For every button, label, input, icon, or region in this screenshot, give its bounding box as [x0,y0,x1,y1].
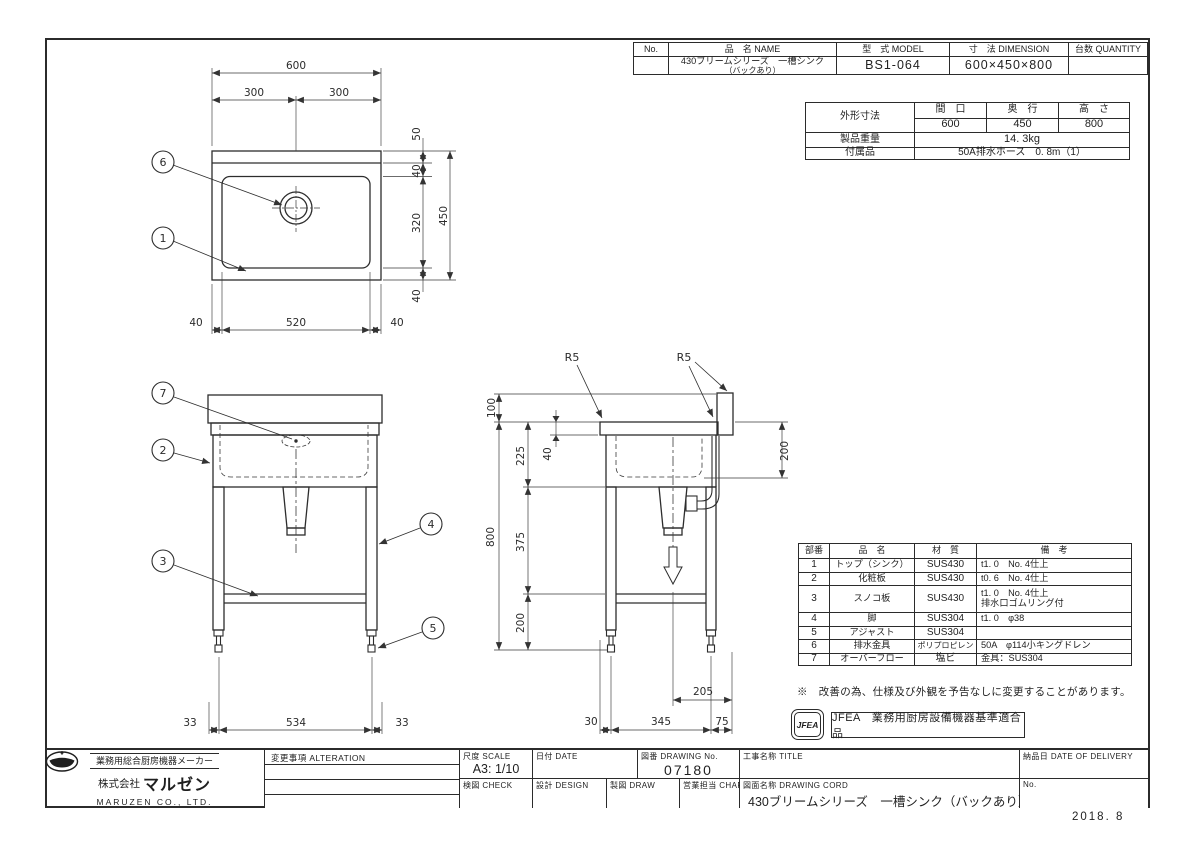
part-name: アジャスト [829,626,914,640]
design-cell: 設計 DESIGN [533,779,607,808]
dim-top-back-gap: 50 [411,127,423,140]
product-header-table: No. 品 名 NAME 型 式 MODEL 寸 法 DIMENSION 台数 … [633,42,1148,75]
dim-front-foot-left: 33 [183,717,196,729]
dim-side-sink-to-shelf: 375 [515,532,527,552]
front-view-hidden-lines [220,425,368,553]
dim-top-bottom-center: 520 [286,317,306,329]
parts-col-material: 材 質 [914,544,976,558]
alteration-row-1 [265,765,459,780]
side-view-outline [600,393,733,630]
parts-col-note: 備 考 [976,544,1131,558]
part-name: 脚 [829,612,914,626]
jfea-stamp: JFEA [791,709,824,740]
maruzen-logo-icon [45,750,79,772]
flow-direction-arrow [664,547,682,584]
col-no: No. [634,43,668,56]
dim-top-sink-depth: 320 [411,213,423,233]
delivery-date-label: 納品日 DATE OF DELIVERY [1020,750,1148,762]
no-value [634,56,668,75]
part-name: トップ（シンク） [829,558,914,572]
alteration-label: 変更事項 ALTERATION [265,750,459,765]
front-view-dimension-labels: 33 534 33 [183,717,408,729]
dim-top-width: 600 [286,60,306,72]
dim-top-rim: 40 [411,164,423,177]
front-view: 33 534 33 7 2 3 4 5 [152,382,444,734]
scale-cell: 尺度 SCALE A3: 1/10 [460,750,533,779]
product-name: 430ブリームシリーズ 一槽シンク （バックあり） [668,56,836,75]
overflow-point [294,439,297,442]
part-no: 2 [799,572,829,586]
revision-date-code: 2018. 8 [1072,811,1124,823]
weight-label: 製品重量 [806,132,914,147]
balloon-4: 4 [428,518,435,531]
top-view-outline [212,151,381,280]
date-cell: 日付 DATE [533,750,638,779]
balloon-3: 3 [160,555,167,568]
col-dimension: 寸 法 DIMENSION [949,43,1068,56]
company-name-en: MARUZEN CO., LTD. [96,797,212,807]
dim-side-shelf-to-floor: 200 [515,613,527,633]
part-material: SUS430 [914,572,976,586]
scale-value: A3: 1/10 [460,762,532,776]
company-prefix: 株式会社 [98,776,140,791]
radius-label-right: R5 [677,351,692,364]
part-no: 6 [799,639,829,653]
dim-side-back-offset: 75 [715,716,728,728]
part-name: 化粧板 [829,572,914,586]
charge-cell: 営業担当 CHARGE [680,779,740,808]
part-material: SUS304 [914,626,976,640]
top-view-centerlines [272,186,320,232]
accessory-label: 付属品 [806,147,914,160]
top-view-balloons: 6 1 [152,151,282,271]
side-view-extension-lines [494,394,788,734]
part-no: 7 [799,653,829,666]
drawing-no-value: 07180 [638,762,739,778]
dim-front-foot-center: 534 [286,717,306,729]
part-no: 4 [799,612,829,626]
part-name: スノコ板 [829,585,914,612]
scale-label: 尺度 SCALE [460,750,532,762]
accessory-value: 50A排水ホース 0. 8m（1） [914,147,1129,160]
side-view-dimension-labels: 100 225 40 800 375 200 200 205 30 345 75 [485,398,791,728]
parts-col-name: 品 名 [829,544,914,558]
model-value: BS1-064 [836,56,949,75]
drawing-no-label: 図番 DRAWING No. [638,750,739,762]
spec-table: 外形寸法 間 口 奥 行 高 さ 600 450 800 製品重量 14. 3k… [805,102,1130,160]
balloon-6: 6 [160,156,167,169]
height-label: 高 さ [1058,103,1129,118]
dim-top-front-rim: 40 [411,289,423,302]
dim-front-foot-right: 33 [395,717,408,729]
product-name-line2: （バックあり） [725,67,781,75]
dim-side-top-to-sink: 225 [515,446,527,466]
side-view-feet [607,630,716,652]
alteration-row-3 [265,795,459,808]
outer-dim-label: 外形寸法 [806,103,914,132]
project-title-label: 工事名称 TITLE [740,750,1019,762]
dim-side-back-depth: 200 [779,441,791,461]
part-name: オーバーフロー [829,653,914,666]
col-model: 型 式 MODEL [836,43,949,56]
drawing-name-cell: 図面名称 DRAWING CORD 430ブリームシリーズ 一槽シンク（バックあ… [740,779,1020,808]
side-view-radius-callouts: R5 R5 [565,351,727,418]
dim-top-depth: 450 [438,206,450,226]
front-view-outline [208,395,382,630]
dim-side-total-height: 800 [485,527,497,547]
drawing-name-value: 430ブリームシリーズ 一槽シンク（バックあり） [740,791,1019,810]
jfea-stamp-text: JFEA [794,712,821,737]
part-no: 1 [799,558,829,572]
part-note: t0. 6 No. 4仕上 [976,572,1131,586]
dim-top-bottom-right: 40 [390,317,403,329]
side-view-drain-pipe [686,436,719,511]
col-quantity: 台数 QUANTITY [1068,43,1147,56]
part-name: 排水金具 [829,639,914,653]
part-material: SUS430 [914,558,976,572]
balloon-5: 5 [430,622,437,635]
alteration-row-2 [265,780,459,795]
dim-top-width-left: 300 [244,87,264,99]
delivery-date-cell: 納品日 DATE OF DELIVERY [1020,750,1148,779]
depth-label: 奥 行 [986,103,1058,118]
dim-side-rim: 40 [542,447,554,460]
part-note: t1. 0 φ38 [976,612,1131,626]
draw-label: 製図 DRAW [607,779,679,791]
serial-no-cell: No. [1020,779,1148,808]
drawing-no-cell: 図番 DRAWING No. 07180 [638,750,740,779]
width-label: 間 口 [914,103,986,118]
quantity-value [1068,56,1147,75]
company-name-row: 株式会社 マルゼン [98,771,211,795]
company-tagline: 業務用総合厨房機器メーカー [90,753,219,769]
company-block: 業務用総合厨房機器メーカー 株式会社 マルゼン MARUZEN CO., LTD… [45,750,265,808]
check-cell: 検図 CHECK [460,779,533,808]
dim-top-width-right: 300 [329,87,349,99]
top-view: 600 300 300 50 40 320 450 40 40 520 40 6… [152,60,456,334]
project-title-cell: 工事名称 TITLE [740,750,1020,779]
part-material: SUS304 [914,612,976,626]
dim-top-bottom-left: 40 [189,317,202,329]
balloon-2: 2 [160,444,167,457]
part-no: 3 [799,585,829,612]
side-view-dimension-lines [499,394,782,730]
alteration-block: 変更事項 ALTERATION [265,750,460,808]
part-note: 金具：SUS304 [976,653,1131,666]
part-material: SUS430 [914,585,976,612]
serial-no-label: No. [1020,779,1148,789]
part-note: t1. 0 No. 4仕上 [976,558,1131,572]
company-name: マルゼン [143,771,211,795]
part-material: ポリプロピレン [914,639,976,653]
dim-side-drain-offset: 205 [693,686,713,698]
depth-value: 450 [986,118,1058,133]
disclaimer-note: ※ 改善の為、仕様及び外観を予告なしに変更することがあります。 [797,684,1131,699]
width-value: 600 [914,118,986,133]
date-label: 日付 DATE [533,750,637,762]
design-label: 設計 DESIGN [533,779,606,791]
height-value: 800 [1058,118,1129,133]
balloon-1: 1 [160,232,167,245]
check-label: 検図 CHECK [460,779,532,791]
dim-side-front-offset: 30 [584,716,597,728]
part-material: 塩ビ [914,653,976,666]
part-note-line2: 排水口ゴムリング付 [981,599,1064,609]
weight-value: 14. 3kg [914,132,1129,147]
front-view-balloons: 7 2 3 4 5 [152,382,444,648]
parts-col-no: 部番 [799,544,829,558]
radius-label-left: R5 [565,351,580,364]
dim-side-back-height: 100 [486,398,498,418]
dim-side-leg-span: 345 [651,716,671,728]
jfea-certification-label: JFEA 業務用厨房設備機器基準適合品 [831,712,1025,738]
parts-table: 部番 品 名 材 質 備 考 1 トップ（シンク） SUS430 t1. 0 N… [798,543,1132,666]
col-name: 品 名 NAME [668,43,836,56]
front-view-feet [214,630,376,652]
balloon-7: 7 [160,387,167,400]
drawing-name-label: 図面名称 DRAWING CORD [740,779,1019,791]
technical-drawing-page: 600 300 300 50 40 320 450 40 40 520 40 6… [0,0,1200,849]
part-no: 5 [799,626,829,640]
part-note: 50A φ114小キングドレン [976,639,1131,653]
side-view: 100 225 40 800 375 200 200 205 30 345 75… [485,351,791,734]
dimension-value: 600×450×800 [949,56,1068,75]
draw-cell: 製図 DRAW [607,779,680,808]
part-note [976,626,1131,640]
charge-label: 営業担当 CHARGE [680,779,739,791]
part-note: t1. 0 No. 4仕上 排水口ゴムリング付 [976,585,1131,612]
